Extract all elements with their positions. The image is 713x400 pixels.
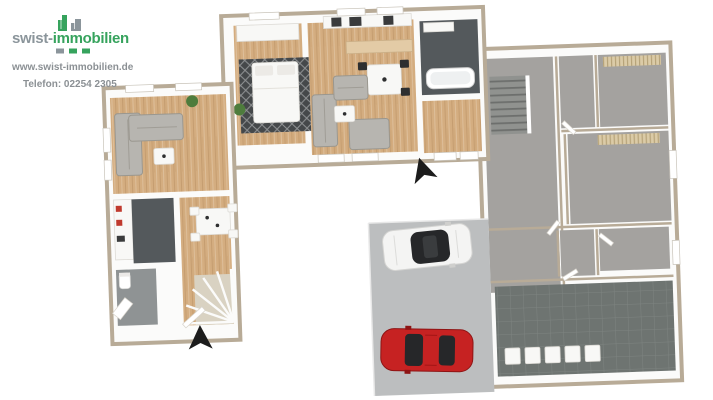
kitchen-sideboard (346, 39, 412, 53)
bed (252, 61, 300, 123)
phone-number: Telefon: 02254 2305 (12, 79, 202, 90)
middle-wing (219, 4, 491, 191)
company-name: swist-immobilien (12, 31, 202, 46)
toilet (119, 272, 131, 288)
right-staircase (489, 76, 527, 135)
entry-hall-floor (422, 99, 482, 153)
company-logo: swist-immobilien (12, 12, 202, 54)
right-wall-window-1 (669, 150, 677, 178)
kitchen-red-appliance-1 (116, 206, 122, 212)
right-lower-corridor-floor (560, 229, 596, 276)
utility-storage-boxes (505, 345, 601, 364)
kitchen-stove (117, 236, 125, 242)
brand-block: swist-immobilien www.swist-immobilien.de… (12, 12, 202, 90)
logo-buildings-icon (56, 12, 86, 31)
right-room-lower-right-floor (599, 227, 670, 271)
website-url: www.swist-immobilien.de (12, 62, 202, 73)
right-room-lower-left-floor (489, 231, 557, 279)
red-car (380, 325, 473, 375)
left-wing (102, 82, 243, 352)
left-kitchen-floor (131, 198, 175, 263)
logo-squares-icon (56, 48, 102, 54)
kitchen-red-appliance-2 (116, 220, 122, 226)
floorplan-image: swist-immobilien www.swist-immobilien.de… (0, 0, 713, 400)
driveway (368, 219, 494, 396)
radiator-top-right (603, 55, 661, 67)
company-name-prefix: swist- (12, 30, 53, 47)
bathroom-vanity (423, 22, 453, 32)
kitchen-counter (323, 13, 411, 28)
right-wall-window-2 (672, 240, 680, 264)
right-wing (472, 40, 684, 389)
bathtub (426, 67, 475, 89)
company-name-suffix: immobilien (53, 30, 129, 47)
utility-room-floor (495, 281, 676, 377)
wardrobe (236, 23, 299, 41)
right-room-middle-floor (567, 131, 671, 224)
right-room-top-left-floor (559, 55, 595, 128)
